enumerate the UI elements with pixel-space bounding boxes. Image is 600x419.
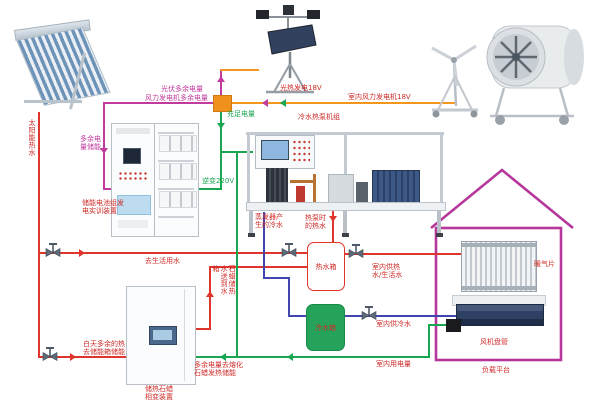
- silver-unit: [328, 174, 354, 204]
- wire-bottom-bus: [193, 356, 430, 358]
- pipe-solar-down: [38, 112, 40, 358]
- valve-storage-line: [42, 346, 58, 364]
- bench-post: [247, 132, 250, 204]
- label-pcm-device: 储热石蜡相变装置: [145, 385, 174, 401]
- control-panel: [255, 135, 315, 169]
- pcm-door-seam: [184, 289, 185, 381]
- label-indoor-power: 室内用电量: [376, 360, 411, 368]
- label-to-domestic: 去生活用水: [145, 257, 180, 265]
- label-load-platform: 负载平台: [482, 366, 510, 374]
- valve-tank-outlet: [348, 243, 364, 261]
- valve-cold-water: [361, 305, 377, 323]
- cabinet-vent: [118, 220, 148, 228]
- hot-water-tank-label: 热水箱: [316, 262, 337, 272]
- pipe-coldtank-to-fancoil: [342, 315, 462, 317]
- battery-shelf: [158, 216, 194, 218]
- valve-tank-inlet: [281, 242, 297, 260]
- pcm-screen-inner: [153, 330, 172, 340]
- label-solar-hot-water: 太阳能热水: [28, 119, 36, 157]
- wire-surplus-down: [103, 102, 105, 190]
- bench-leg: [249, 211, 253, 233]
- label-surplus-to-storage: 多余电量储能: [80, 135, 102, 151]
- panel-buttons: [292, 139, 310, 163]
- flow-arrow: [70, 353, 76, 361]
- battery-shelf: [158, 188, 194, 190]
- cold-water-tank: 冷水箱: [306, 304, 345, 351]
- caster: [248, 233, 255, 237]
- caster: [436, 233, 443, 237]
- valve-domestic-water: [45, 242, 61, 260]
- bench-leg: [437, 211, 441, 233]
- label-heat-pump-unit: 冷水热泵机组: [298, 113, 340, 121]
- label-paraffin-to-tank: 石蜡储热水送到水箱: [212, 265, 236, 302]
- fancoil-pump: [446, 319, 461, 332]
- wire-box-up: [220, 69, 222, 96]
- gray-unit: [356, 182, 368, 202]
- panel-screen: [261, 140, 289, 160]
- copper-pipe: [313, 174, 316, 202]
- label-battery-system: 储能电池组发电实训装置: [82, 199, 126, 215]
- battery-cabinet-right: [154, 123, 199, 237]
- battery-row: [159, 135, 197, 152]
- bench-leg: [343, 211, 347, 233]
- solar-collector: [4, 0, 114, 115]
- label-wind-18v: 室内风力发电机18V: [348, 93, 411, 101]
- flow-arrow: [329, 216, 337, 222]
- battery-shelf: [158, 132, 194, 134]
- collector-tubes: [16, 27, 111, 106]
- label-indoor-cold: 室内供冷水: [376, 320, 411, 328]
- label-hp-hot: 热泵时的热水: [305, 214, 327, 230]
- label-surplus-melt: 多余电量去熔化石蜡发热储能: [194, 361, 245, 377]
- wire-house-up: [428, 325, 430, 358]
- caster: [342, 233, 349, 237]
- wind-turbine-icon: [432, 46, 478, 118]
- cabinet-screen: [123, 148, 141, 164]
- flow-arrow: [280, 99, 286, 107]
- red-vessel: [296, 186, 305, 202]
- cold-water-tank-label: 冷水箱: [315, 323, 336, 333]
- wind-generator-group: [420, 4, 600, 128]
- label-indoor-hot: 室内供热水/生活水: [372, 263, 409, 279]
- pipe-pcm-out-b: [209, 267, 211, 330]
- bench-post: [440, 132, 443, 204]
- label-wind-surplus: 风力发电机多余电量: [145, 94, 208, 102]
- label-pv-18v: 光热发电18V: [280, 84, 322, 92]
- label-day-surplus-heat: 白天多余的热去储能箱储能: [83, 340, 128, 356]
- fan-coil-unit: [446, 295, 548, 337]
- battery-shelf: [158, 160, 194, 162]
- bench-table: [246, 202, 446, 211]
- pipe-evap-jog: [263, 277, 290, 279]
- label-charge-enough: 充足电量: [227, 110, 255, 118]
- battery-row: [159, 191, 197, 208]
- battery-row: [159, 163, 197, 180]
- pv-tracker: [252, 4, 322, 96]
- duct-fan-icon: [487, 26, 584, 125]
- label-pv-surplus: 光伏多余电量: [161, 85, 203, 93]
- radiator: [461, 241, 537, 292]
- label-inverter: 逆变220V: [202, 177, 234, 185]
- flow-arrow: [262, 99, 268, 107]
- indicator-leds: [118, 171, 148, 182]
- label-radiator: 暖气片: [534, 260, 555, 268]
- flow-arrow: [217, 76, 225, 82]
- hot-water-tank: 热水箱: [307, 242, 345, 291]
- condenser-unit: [372, 170, 420, 204]
- wire-inverter: [197, 188, 222, 190]
- system-diagram: 热水箱 冷水箱 太阳能热水 光伏多余电量 风力发: [0, 0, 600, 419]
- flow-arrow: [287, 353, 293, 361]
- label-fan-coil: 风机盘管: [480, 338, 508, 346]
- fancoil-body: [456, 304, 544, 326]
- cabinet-vent: [116, 128, 150, 134]
- wire-main-down: [236, 151, 238, 358]
- pcm-screen: [149, 326, 177, 345]
- collector-leg: [24, 100, 82, 103]
- flow-arrow: [217, 123, 225, 129]
- battery-cabinet-left: [111, 123, 156, 237]
- compressor: [266, 168, 288, 202]
- pcm-storage-cabinet: [126, 286, 196, 385]
- pipe-into-coldtank: [288, 315, 306, 317]
- pipe-evap-down2: [288, 277, 290, 317]
- label-evap-cold: 蒸发器产生的冷水: [255, 213, 284, 229]
- flow-arrow: [79, 249, 85, 257]
- flow-arrow: [220, 353, 226, 361]
- wire-surplus-bus: [103, 102, 214, 104]
